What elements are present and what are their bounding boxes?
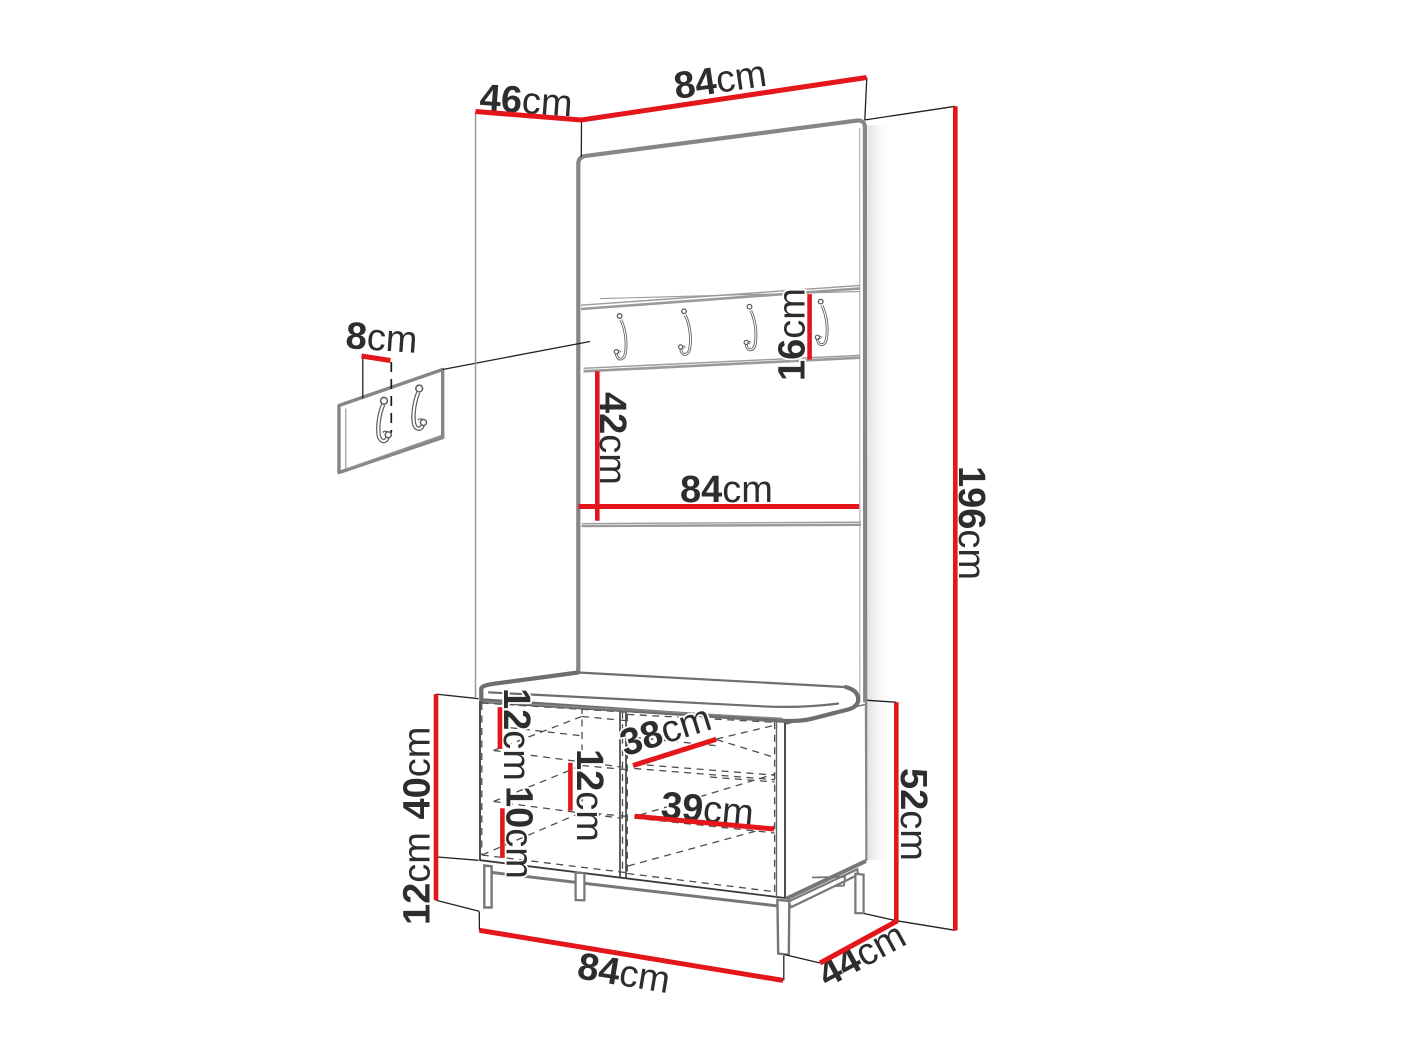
svg-text:12cm: 12cm [568,749,610,842]
svg-text:16cm: 16cm [772,288,814,381]
svg-text:8cm: 8cm [344,315,419,362]
svg-text:12cm: 12cm [397,832,439,925]
svg-text:40cm: 40cm [397,727,439,820]
